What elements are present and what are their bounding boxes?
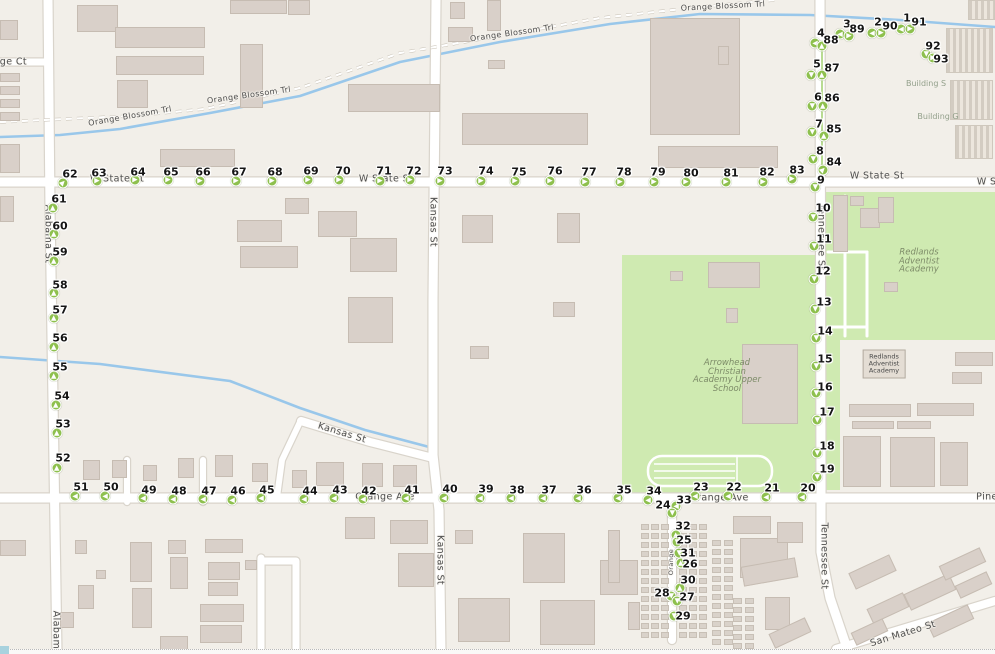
marker-number-label: 13 [816, 296, 831, 309]
rowhouse-building [712, 585, 721, 591]
rowhouse-building [724, 576, 733, 582]
marker-number-label: 19 [819, 463, 834, 476]
rowhouse-building [679, 632, 687, 638]
rowhouse-building [651, 605, 659, 611]
building [0, 73, 20, 82]
building [487, 0, 501, 31]
rowhouse-building [699, 560, 707, 566]
marker-number-label: 85 [826, 123, 841, 136]
building [462, 215, 493, 243]
building [116, 56, 204, 75]
marker-number-label: 40 [442, 483, 457, 496]
marker-number-label: 15 [817, 353, 832, 366]
rowhouse-building [745, 598, 754, 604]
rowhouse-building [712, 567, 721, 573]
marker-number-label: 24 [655, 499, 670, 512]
rowhouse-building [689, 623, 697, 629]
building [77, 5, 118, 32]
marker-number-label: 73 [437, 165, 452, 178]
rowhouse-building [651, 542, 659, 548]
rowhouse-building [641, 623, 649, 629]
rowhouse-building [724, 612, 733, 618]
marker-number-label: 93 [933, 53, 948, 66]
building [288, 0, 310, 15]
marker-number-label: 42 [361, 485, 376, 498]
building [450, 2, 465, 19]
marker-number-label: 61 [51, 193, 66, 206]
rowhouse-building [712, 603, 721, 609]
solar-panel-array [968, 0, 995, 20]
rowhouse-building [733, 598, 742, 604]
building [398, 553, 434, 587]
rowhouse-building [641, 578, 649, 584]
rowhouse-building [699, 614, 707, 620]
building [878, 197, 894, 223]
building [390, 520, 428, 544]
rowhouse-building [733, 634, 742, 640]
marker-number-label: 47 [201, 485, 216, 498]
street-label: Kansas St [435, 535, 446, 585]
rowhouse-building [712, 540, 721, 546]
rowhouse-building [724, 630, 733, 636]
marker-number-label: 57 [52, 304, 67, 317]
direction-arrow-icon: ▶ [807, 71, 816, 80]
building [852, 421, 894, 429]
marker-number-label: 14 [817, 325, 832, 338]
road [261, 561, 296, 652]
street-label: Pine Ave [976, 492, 995, 503]
direction-arrow-icon: ▶ [53, 464, 62, 473]
building [540, 600, 595, 645]
rowhouse-building [661, 542, 669, 548]
marker-number-label: 6 [814, 91, 822, 104]
building [0, 86, 20, 95]
solar-panel-array [946, 28, 993, 73]
building [890, 437, 935, 487]
marker-number-label: 52 [55, 452, 70, 465]
marker-number-label: 50 [103, 481, 118, 494]
building [252, 463, 268, 482]
direction-arrow-icon: ▶ [546, 177, 555, 186]
road-casing [261, 561, 296, 652]
marker-number-label: 29 [675, 610, 690, 623]
marker-number-label: 80 [683, 167, 698, 180]
area-label: ArrowheadChristianAcademy UpperSchool [693, 359, 761, 393]
building [628, 602, 640, 630]
building [160, 149, 235, 167]
rowhouse-building [699, 533, 707, 539]
building [523, 533, 565, 583]
marker-number-label: 36 [576, 484, 591, 497]
rowhouse-building [641, 524, 649, 530]
building [348, 84, 440, 112]
building [860, 208, 880, 228]
rowhouse-building [689, 632, 697, 638]
building [200, 604, 244, 622]
marker-number-label: 32 [675, 520, 690, 533]
building [215, 455, 233, 477]
building [240, 246, 298, 268]
marker-number-label: 27 [679, 591, 694, 604]
road [48, 0, 57, 654]
building [726, 308, 738, 323]
marker-number-label: 26 [682, 558, 697, 571]
building [0, 20, 18, 40]
marker-number-label: 17 [819, 406, 834, 419]
building [350, 238, 397, 272]
building [843, 436, 881, 487]
rowhouse-building [745, 625, 754, 631]
area-label: RedlandsAdventistAcademy [863, 350, 906, 379]
building [178, 458, 194, 478]
building [143, 465, 157, 481]
direction-arrow-icon: ▶ [650, 178, 659, 187]
marker-number-label: 46 [230, 485, 245, 498]
building [112, 460, 127, 478]
building [362, 463, 383, 487]
rowhouse-building [661, 533, 669, 539]
street-label: Orange Ct [0, 57, 27, 68]
area-label: RedlandsAdventistAcademy [899, 248, 939, 274]
building [455, 530, 473, 544]
marker-number-label: 72 [406, 165, 421, 178]
marker-number-label: 25 [676, 534, 691, 547]
rowhouse-building [724, 621, 733, 627]
marker-number-label: 62 [62, 168, 77, 181]
rowhouse-building [699, 542, 707, 548]
rowhouse-building [641, 605, 649, 611]
building [60, 612, 74, 628]
building [650, 18, 740, 135]
rowhouse-building [712, 621, 721, 627]
street-label: W State St [850, 171, 904, 182]
building [488, 60, 505, 69]
marker-number-label: 49 [141, 484, 156, 497]
building [708, 262, 760, 288]
building [849, 404, 911, 417]
route-marker[interactable]: ▶ [806, 70, 817, 81]
building [833, 195, 848, 252]
rowhouse-building [699, 632, 707, 638]
building [117, 80, 148, 108]
building [458, 598, 510, 642]
building [897, 421, 931, 429]
rowhouse-building [699, 587, 707, 593]
marker-number-label: 70 [335, 165, 350, 178]
street-label: Tennessee St [819, 522, 830, 589]
building [608, 530, 620, 583]
marker-number-label: 81 [723, 167, 738, 180]
rowhouse-building [661, 524, 669, 530]
marker-number-label: 51 [73, 481, 88, 494]
marker-number-label: 45 [259, 484, 274, 497]
building [955, 352, 993, 366]
rowhouse-building [724, 540, 733, 546]
rowhouse-building [651, 551, 659, 557]
marker-number-label: 37 [541, 484, 556, 497]
rowhouse-building [651, 533, 659, 539]
rowhouse-building [724, 639, 733, 645]
building [0, 196, 14, 222]
marker-number-label: 39 [478, 483, 493, 496]
building [230, 0, 287, 14]
rowhouse-building [724, 549, 733, 555]
marker-number-label: 67 [231, 166, 246, 179]
marker-number-label: 53 [55, 418, 70, 431]
marker-number-label: 75 [511, 166, 526, 179]
rowhouse-building [661, 632, 669, 638]
rowhouse-building [712, 549, 721, 555]
marker-number-label: 66 [195, 166, 210, 179]
marker-number-label: 11 [816, 233, 831, 246]
rowhouse-building [641, 632, 649, 638]
marker-number-label: 23 [693, 481, 708, 494]
building [0, 540, 26, 556]
marker-number-label: 16 [817, 381, 832, 394]
building [733, 516, 771, 534]
rowhouse-building [712, 576, 721, 582]
direction-arrow-icon: ▶ [436, 177, 445, 186]
building [940, 442, 968, 486]
marker-number-label: 77 [581, 166, 596, 179]
marker-number-label: 65 [163, 166, 178, 179]
marker-number-label: 92 [925, 40, 940, 53]
marker-number-label: 9 [817, 174, 825, 187]
rowhouse-building [641, 569, 649, 575]
building [83, 460, 100, 480]
building [318, 211, 357, 237]
rowhouse-building [661, 605, 669, 611]
marker-number-label: 74 [478, 165, 493, 178]
marker-number-label: 38 [509, 484, 524, 497]
marker-number-label: 76 [547, 165, 562, 178]
marker-number-label: 7 [815, 118, 823, 131]
rowhouse-building [661, 578, 669, 584]
building [316, 462, 344, 486]
marker-number-label: 44 [302, 485, 317, 498]
rowhouse-building [699, 569, 707, 575]
rowhouse-building [651, 569, 659, 575]
building [208, 582, 238, 596]
marker-number-label: 60 [52, 220, 67, 233]
marker-number-label: 21 [764, 482, 779, 495]
rowhouse-building [745, 607, 754, 613]
building [670, 271, 683, 281]
marker-number-label: 82 [759, 166, 774, 179]
building [777, 522, 803, 543]
direction-arrow-icon: ▶ [376, 177, 385, 186]
marker-number-label: 54 [54, 390, 69, 403]
building [557, 213, 580, 243]
marker-number-label: 63 [91, 167, 106, 180]
marker-number-label: 84 [826, 156, 841, 169]
marker-number-label: 43 [332, 484, 347, 497]
map-edge-strip [0, 649, 995, 654]
rowhouse-building [712, 594, 721, 600]
rowhouse-building [679, 623, 687, 629]
marker-number-label: 28 [654, 587, 669, 600]
rowhouse-building [724, 585, 733, 591]
rowhouse-building [699, 596, 707, 602]
building [170, 557, 188, 589]
rowhouse-building [745, 616, 754, 622]
marker-number-label: 58 [52, 279, 67, 292]
building [160, 636, 188, 650]
rowhouse-building [712, 612, 721, 618]
building [470, 346, 489, 359]
marker-number-label: 48 [171, 485, 186, 498]
marker-number-label: 69 [303, 165, 318, 178]
building [75, 540, 87, 554]
building [200, 625, 242, 643]
building [718, 46, 729, 65]
marker-number-label: 1 [903, 12, 911, 25]
rowhouse-building [651, 560, 659, 566]
building [130, 542, 152, 582]
rowhouse-building [699, 605, 707, 611]
rowhouse-building [641, 614, 649, 620]
rowhouse-building [724, 594, 733, 600]
marker-number-label: 55 [52, 361, 67, 374]
building [78, 585, 94, 609]
building [168, 540, 186, 554]
rowhouse-building [733, 625, 742, 631]
marker-number-label: 90 [882, 20, 897, 33]
building [917, 403, 974, 416]
marker-number-label: 91 [911, 16, 926, 29]
rowhouse-building [641, 533, 649, 539]
marker-number-label: 12 [815, 265, 830, 278]
marker-number-label: 10 [815, 202, 830, 215]
rowhouse-building [724, 558, 733, 564]
rowhouse-building [699, 578, 707, 584]
rowhouse-building [733, 616, 742, 622]
marker-number-label: 2 [874, 16, 882, 29]
building [0, 144, 20, 173]
marker-number-label: 79 [650, 166, 665, 179]
rowhouse-building [641, 596, 649, 602]
rowhouse-building [699, 623, 707, 629]
rowhouse-building [699, 524, 707, 530]
building [132, 588, 152, 628]
building [952, 372, 982, 384]
building [237, 220, 282, 242]
building [345, 517, 375, 539]
marker-number-label: 20 [800, 482, 815, 495]
rowhouse-building [641, 560, 649, 566]
building [115, 27, 205, 48]
marker-number-label: 88 [823, 34, 838, 47]
rowhouse-building [724, 567, 733, 573]
building [0, 99, 20, 108]
solar-panel-array [955, 125, 993, 159]
rowhouse-building [651, 632, 659, 638]
rowhouse-building [745, 634, 754, 640]
area-label: Building G [917, 113, 958, 122]
building [205, 539, 243, 553]
rowhouse-building [641, 542, 649, 548]
map-canvas[interactable]: Orange CtOrange Blossom TrlOrange Blosso… [0, 0, 995, 654]
rowhouse-building [651, 578, 659, 584]
marker-number-label: 5 [813, 58, 821, 71]
marker-number-label: 22 [726, 481, 741, 494]
building [462, 113, 588, 145]
marker-number-label: 41 [404, 484, 419, 497]
rowhouse-building [651, 623, 659, 629]
marker-number-label: 87 [824, 62, 839, 75]
marker-number-label: 83 [789, 164, 804, 177]
rowhouse-building [651, 614, 659, 620]
building [553, 302, 575, 317]
direction-arrow-icon: ▶ [477, 177, 486, 186]
building [0, 112, 20, 121]
marker-number-label: 8 [816, 145, 824, 158]
street-label: Alabama St [51, 611, 62, 654]
marker-number-label: 34 [646, 485, 661, 498]
rowhouse-building [733, 607, 742, 613]
building [96, 570, 106, 579]
building [285, 198, 309, 214]
building [884, 282, 898, 292]
marker-number-label: 68 [267, 166, 282, 179]
rowhouse-building [712, 639, 721, 645]
marker-number-label: 56 [52, 332, 67, 345]
direction-arrow-icon: ▶ [581, 178, 590, 187]
marker-number-label: 78 [616, 166, 631, 179]
building [850, 196, 864, 206]
direction-arrow-icon: ▶ [616, 178, 625, 187]
rowhouse-building [641, 551, 649, 557]
rowhouse-building [724, 603, 733, 609]
marker-number-label: 71 [376, 165, 391, 178]
marker-number-label: 86 [824, 92, 839, 105]
marker-number-label: 33 [676, 494, 691, 507]
building [348, 297, 393, 343]
marker-number-label: 18 [819, 440, 834, 453]
area-label: Building S [906, 80, 946, 89]
marker-number-label: 89 [849, 23, 864, 36]
rowhouse-building [712, 630, 721, 636]
marker-number-label: 59 [52, 246, 67, 259]
rowhouse-building [712, 558, 721, 564]
direction-arrow-icon: ▶ [759, 178, 768, 187]
street-label: Kansas St [428, 197, 439, 247]
rowhouse-building [641, 587, 649, 593]
rowhouse-building [651, 524, 659, 530]
rowhouse-building [699, 551, 707, 557]
map-artifact [0, 646, 9, 654]
building [245, 560, 257, 570]
marker-number-label: 35 [616, 484, 631, 497]
building [208, 562, 240, 580]
marker-number-label: 30 [680, 574, 695, 587]
street-label: W State St [977, 177, 995, 188]
marker-number-label: 64 [130, 166, 145, 179]
rowhouse-building [661, 623, 669, 629]
